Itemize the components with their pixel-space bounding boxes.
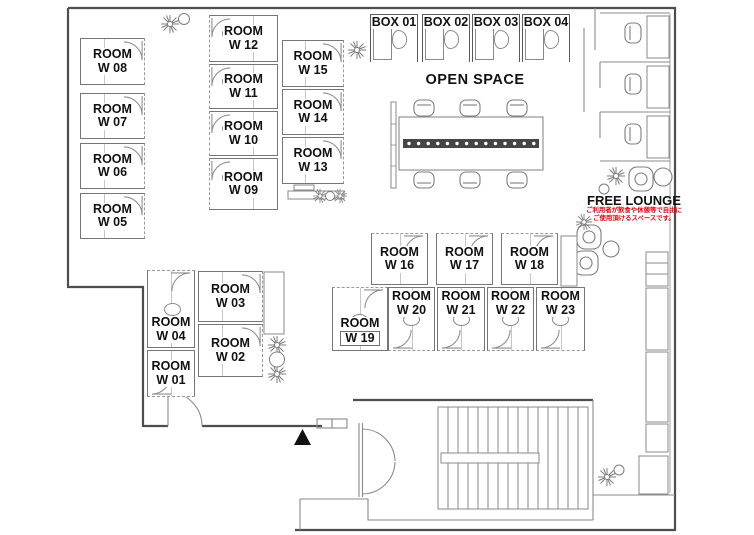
room-W16: ROOMW 16: [371, 233, 428, 285]
box-label: BOX 01: [372, 15, 416, 29]
room-label: ROOMW 20: [391, 290, 432, 317]
whiteboard: [391, 102, 396, 188]
room-label-number: W 05: [93, 216, 132, 230]
room-W01: ROOMW 01: [147, 350, 195, 397]
room-label: ROOMW 03: [210, 283, 251, 310]
room-label-number: W 11: [224, 87, 263, 101]
room-label: ROOMW 09: [223, 171, 264, 198]
room-label: ROOMW 17: [444, 246, 485, 273]
room-W06: ROOMW 06: [80, 143, 145, 189]
room-label-line1: ROOM: [392, 290, 431, 304]
chair-icon: [625, 124, 641, 144]
room-label-line1: ROOM: [294, 147, 333, 161]
plant-pot: [614, 465, 624, 475]
room-W23: ROOMW 23: [536, 287, 585, 351]
plant-icon: [268, 365, 286, 383]
chair-icon: [507, 100, 527, 116]
desk: [475, 28, 494, 60]
room-label-number: W 19: [340, 331, 379, 347]
room-label-number: W 16: [380, 259, 419, 273]
box-label: BOX 02: [424, 15, 468, 29]
free-lounge-note-line2: ご使用頂けるスペースです。: [580, 215, 688, 223]
room-label: ROOMW 01: [151, 360, 192, 387]
door-arc-icon: [491, 329, 511, 349]
room-label-number: W 07: [93, 116, 132, 130]
room-label-number: W 03: [211, 297, 250, 311]
box-label: BOX 04: [524, 15, 568, 29]
room-label: ROOMW 04: [151, 316, 192, 343]
chair-icon: [625, 74, 641, 94]
room-label: ROOMW 19: [339, 317, 380, 346]
armchair-icon: [574, 251, 598, 275]
room-label-line1: ROOM: [445, 246, 484, 260]
room-label: ROOMW 07: [92, 103, 133, 130]
room-W14: ROOMW 14: [282, 89, 344, 135]
room-label: ROOMW 21: [441, 290, 482, 317]
room-W10: ROOMW 10: [209, 111, 278, 156]
box-BOX01: BOX 01: [370, 14, 418, 62]
power-strip: [403, 139, 539, 148]
desk: [425, 28, 444, 60]
desk: [525, 28, 544, 60]
floor-plan: ROOMW 01ROOMW 02ROOMW 03ROOMW 04ROOMW 05…: [0, 0, 754, 535]
room-label-line1: ROOM: [93, 103, 132, 117]
room-label-line1: ROOM: [93, 48, 132, 62]
booth-desks: [647, 16, 669, 158]
room-label-line1: ROOM: [152, 316, 191, 330]
room-label: ROOMW 18: [509, 246, 550, 273]
room-W05: ROOMW 05: [80, 193, 145, 239]
chair-icon: [392, 30, 407, 49]
chair-icon: [414, 100, 434, 116]
door-arc-icon: [171, 272, 191, 292]
free-lounge-label: FREE LOUNGE: [584, 193, 684, 208]
room-label-line1: ROOM: [541, 290, 580, 304]
room-label: ROOMW 11: [223, 73, 264, 100]
door-arc-icon: [364, 289, 384, 309]
box-BOX02: BOX 02: [422, 14, 470, 62]
room-label-number: W 20: [392, 304, 431, 318]
room-label-line1: ROOM: [510, 246, 549, 260]
room-label-number: W 12: [224, 39, 263, 53]
door-arc-icon: [540, 329, 560, 349]
room-W13: ROOMW 13: [282, 137, 344, 184]
chair-icon: [460, 100, 480, 116]
box-BOX03: BOX 03: [472, 14, 520, 62]
room-label-line1: ROOM: [211, 283, 250, 297]
room-label-number: W 17: [445, 259, 484, 273]
room-W11: ROOMW 11: [209, 64, 278, 109]
room-W04: ROOMW 04: [147, 270, 195, 348]
door-arc-icon: [441, 329, 461, 349]
room-label-number: W 01: [152, 374, 191, 388]
room-label-line1: ROOM: [224, 25, 263, 39]
plant-icon: [348, 41, 366, 59]
chair-icon: [414, 172, 434, 188]
room-W15: ROOMW 15: [282, 40, 344, 87]
room-W09: ROOMW 09: [209, 158, 278, 210]
armchair-icon: [577, 225, 601, 249]
room-label-line1: ROOM: [380, 246, 419, 260]
desk: [373, 28, 392, 60]
room-label-line1: ROOM: [93, 203, 132, 217]
room-label: ROOMW 14: [293, 99, 334, 126]
room-label-line1: ROOM: [491, 290, 530, 304]
room-label-number: W 23: [541, 304, 580, 318]
room-W21: ROOMW 21: [437, 287, 485, 351]
room-label: ROOMW 05: [92, 203, 133, 230]
room-W18: ROOMW 18: [501, 233, 558, 285]
room-W22: ROOMW 22: [487, 287, 534, 351]
room-label-number: W 14: [294, 112, 333, 126]
chair-icon: [164, 303, 181, 316]
armchair-icon: [629, 167, 653, 191]
room-label-line1: ROOM: [152, 360, 191, 374]
room-label-line1: ROOM: [224, 120, 263, 134]
room-label: ROOMW 02: [210, 337, 251, 364]
room-label-number: W 09: [224, 184, 263, 198]
box-BOX04: BOX 04: [522, 14, 570, 62]
room-W08: ROOMW 08: [80, 38, 145, 85]
free-lounge-note-line1: ご利用者が飲食や休憩等で自由に: [580, 207, 688, 215]
round-table-icon: [654, 168, 672, 186]
plant-icon: [598, 468, 616, 486]
chair-icon: [460, 172, 480, 188]
room-label: ROOMW 12: [223, 25, 264, 52]
room-label: ROOMW 15: [293, 50, 334, 77]
room-W17: ROOMW 17: [436, 233, 493, 285]
room-W07: ROOMW 07: [80, 93, 145, 139]
room-label-number: W 21: [442, 304, 481, 318]
room-W20: ROOMW 20: [388, 287, 435, 351]
room-label-number: W 02: [211, 351, 250, 365]
room-label: ROOMW 16: [379, 246, 420, 273]
chair-icon: [544, 30, 559, 49]
room-label-number: W 15: [294, 64, 333, 78]
room-W12: ROOMW 12: [209, 15, 278, 62]
room-W03: ROOMW 03: [198, 271, 263, 322]
room-label-number: W 08: [93, 62, 132, 76]
entrance-triangle-icon: [294, 429, 311, 445]
plant-icon: [161, 15, 179, 33]
room-label-line1: ROOM: [340, 317, 379, 331]
staircase: [438, 407, 588, 509]
round-table-icon: [603, 241, 619, 257]
room-label: ROOMW 23: [540, 290, 581, 317]
plant-icon: [607, 167, 625, 185]
room-label: ROOMW 13: [293, 147, 334, 174]
room-label-number: W 13: [294, 161, 333, 175]
chair-icon: [494, 30, 509, 49]
room-label: ROOMW 08: [92, 48, 133, 75]
room-label-line1: ROOM: [294, 99, 333, 113]
room-W19: ROOMW 19: [332, 287, 388, 351]
room-label-line1: ROOM: [224, 171, 263, 185]
plant-pot: [270, 352, 285, 367]
plant-icon: [268, 336, 286, 354]
room-label: ROOMW 06: [92, 153, 133, 180]
room-label-number: W 18: [510, 259, 549, 273]
free-lounge-note: ご利用者が飲食や休憩等で自由に ご使用頂けるスペースです。: [580, 207, 688, 222]
room-label-line1: ROOM: [294, 50, 333, 64]
chair-icon: [444, 30, 459, 49]
room-label: ROOMW 10: [223, 120, 264, 147]
room-label-line1: ROOM: [224, 73, 263, 87]
room-label-number: W 06: [93, 166, 132, 180]
plant-pot: [179, 14, 190, 25]
room-label-line1: ROOM: [442, 290, 481, 304]
door-arc-icon: [392, 329, 412, 349]
chair-icon: [507, 172, 527, 188]
open-space-label: OPEN SPACE: [420, 72, 530, 88]
chair-icon: [625, 23, 641, 43]
plant-pot: [326, 192, 335, 201]
box-label: BOX 03: [474, 15, 518, 29]
room-label-number: W 04: [152, 330, 191, 344]
room-label-number: W 10: [224, 134, 263, 148]
room-W02: ROOMW 02: [198, 324, 263, 377]
room-label-line1: ROOM: [93, 153, 132, 167]
room-label: ROOMW 22: [490, 290, 531, 317]
room-label-number: W 22: [491, 304, 530, 318]
room-label-line1: ROOM: [211, 337, 250, 351]
